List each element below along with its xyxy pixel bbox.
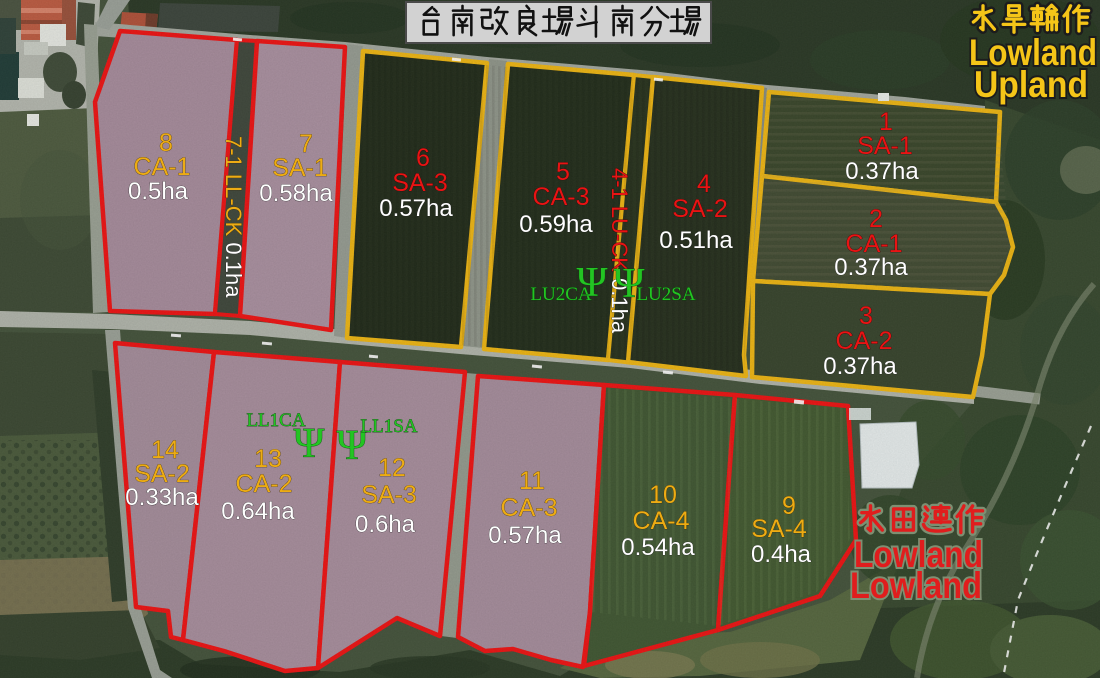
svg-text:0.58ha: 0.58ha	[259, 180, 333, 207]
svg-text:SA-3: SA-3	[392, 169, 448, 197]
svg-text:SA-3: SA-3	[361, 481, 417, 509]
svg-text:SA-2: SA-2	[672, 195, 728, 223]
svg-text:CA-1: CA-1	[134, 153, 191, 181]
svg-text:CA-3: CA-3	[501, 494, 558, 522]
svg-text:CA-2: CA-2	[836, 327, 893, 355]
svg-text:0.33ha: 0.33ha	[125, 484, 199, 511]
svg-text:Ψ: Ψ	[577, 260, 608, 306]
svg-text:4: 4	[697, 170, 711, 198]
svg-text:0.6ha: 0.6ha	[355, 511, 416, 538]
svg-text:Lowland: Lowland	[850, 565, 982, 606]
svg-text:SA-1: SA-1	[857, 132, 913, 160]
svg-text:10: 10	[649, 481, 677, 509]
svg-text:0.64ha: 0.64ha	[221, 498, 295, 525]
svg-text:0.4ha: 0.4ha	[751, 541, 812, 568]
svg-text:Upland: Upland	[974, 64, 1088, 105]
svg-text:Ψ: Ψ	[294, 421, 325, 467]
svg-text:CA-3: CA-3	[533, 183, 590, 211]
svg-text:11: 11	[519, 467, 545, 495]
svg-text:0.37ha: 0.37ha	[834, 254, 908, 281]
svg-text:0.59ha: 0.59ha	[519, 211, 593, 238]
svg-text:LL1SA: LL1SA	[361, 416, 418, 437]
svg-text:0.37ha: 0.37ha	[823, 353, 897, 380]
svg-text:0.51ha: 0.51ha	[659, 227, 733, 254]
svg-text:7-1 LL-CK 0.1ha: 7-1 LL-CK 0.1ha	[221, 136, 246, 298]
svg-text:12: 12	[378, 454, 406, 482]
svg-text:SA-1: SA-1	[272, 154, 328, 182]
svg-text:5: 5	[556, 158, 570, 186]
svg-text:13: 13	[254, 445, 282, 473]
svg-text:2: 2	[869, 205, 883, 233]
svg-text:0.57ha: 0.57ha	[379, 195, 453, 222]
svg-text:CA-2: CA-2	[236, 470, 293, 498]
svg-text:0.57ha: 0.57ha	[488, 522, 562, 549]
svg-text:0.37ha: 0.37ha	[845, 158, 919, 185]
svg-text:0.5ha: 0.5ha	[128, 178, 189, 205]
svg-text:LU2SA: LU2SA	[636, 284, 695, 305]
svg-text:6: 6	[416, 144, 430, 172]
svg-text:CA-4: CA-4	[633, 507, 690, 535]
svg-text:SA-4: SA-4	[751, 515, 807, 543]
svg-text:0.54ha: 0.54ha	[621, 534, 695, 561]
svg-text:3: 3	[859, 302, 873, 330]
svg-text:4-1 LU-CK 0.1ha: 4-1 LU-CK 0.1ha	[607, 168, 632, 334]
